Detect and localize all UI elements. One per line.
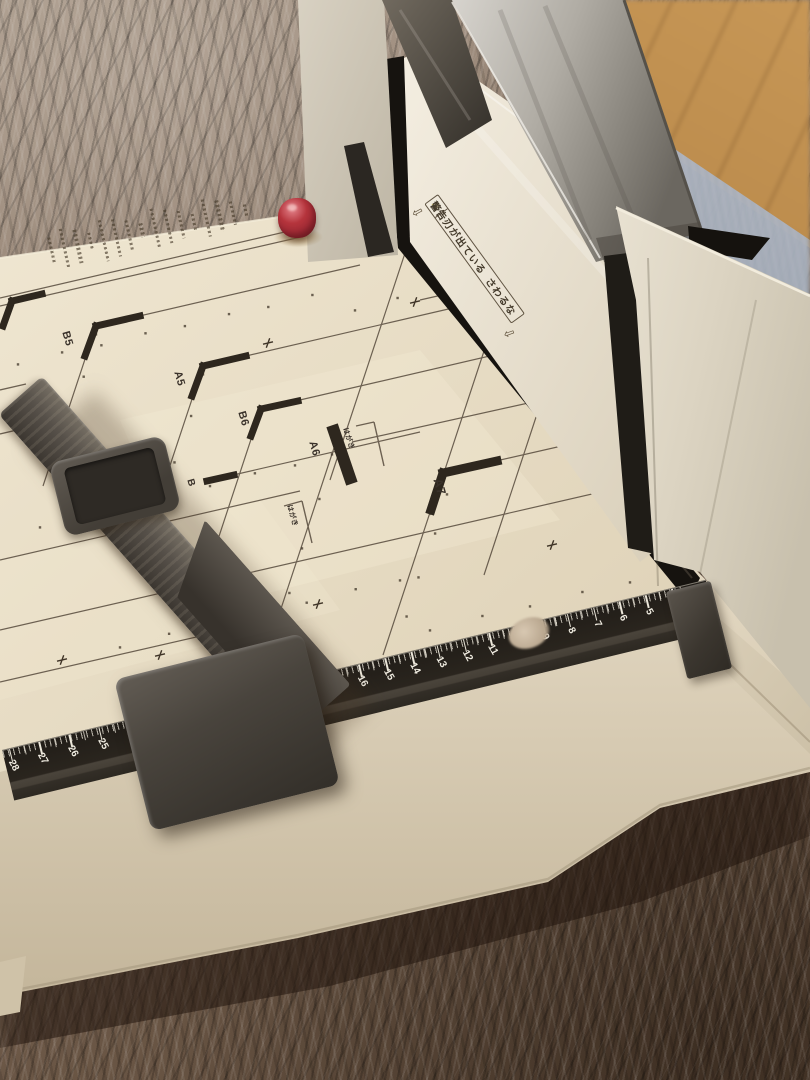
fine-print-column xyxy=(163,210,173,244)
ruler-number: 26 xyxy=(63,740,81,762)
fine-print-column xyxy=(191,214,198,232)
fine-print-column xyxy=(215,200,225,232)
ruler-number: 12 xyxy=(457,645,475,667)
fine-print-column xyxy=(149,208,161,248)
fine-print-column xyxy=(243,204,249,216)
fine-print-column xyxy=(73,230,83,264)
fine-print-column xyxy=(228,201,236,225)
fine-print-column xyxy=(87,233,94,249)
ruler-number: 6 xyxy=(614,607,632,629)
fine-print-column xyxy=(201,199,212,237)
ruler-number: 14 xyxy=(405,658,423,680)
ruler-number: 7 xyxy=(588,613,606,635)
ruler-number: 25 xyxy=(93,733,111,755)
ruler-number: 15 xyxy=(379,664,397,686)
size-label-a7: A7 xyxy=(431,477,448,497)
ruler-number: 11 xyxy=(483,639,501,661)
photo-paper-cutter-on-shag-rug: ⇩ ⚠ 警告 刃が出ている さわるな ⇩ B5 A5 B6 A6 はがき A7 … xyxy=(0,0,810,1080)
fine-print-column xyxy=(59,228,71,268)
ruler-number: 8 xyxy=(562,620,580,642)
fine-print-column xyxy=(139,223,145,237)
fine-print-column xyxy=(97,220,109,262)
ruler-number: 5 xyxy=(640,601,658,623)
ruler-number: 27 xyxy=(33,748,51,770)
fine-print-column xyxy=(125,220,135,250)
fine-print-column xyxy=(176,211,185,239)
fine-print-column xyxy=(111,219,122,257)
base-left-corner xyxy=(0,956,26,1016)
ruler-number: 13 xyxy=(431,651,449,673)
red-knob xyxy=(278,198,316,238)
